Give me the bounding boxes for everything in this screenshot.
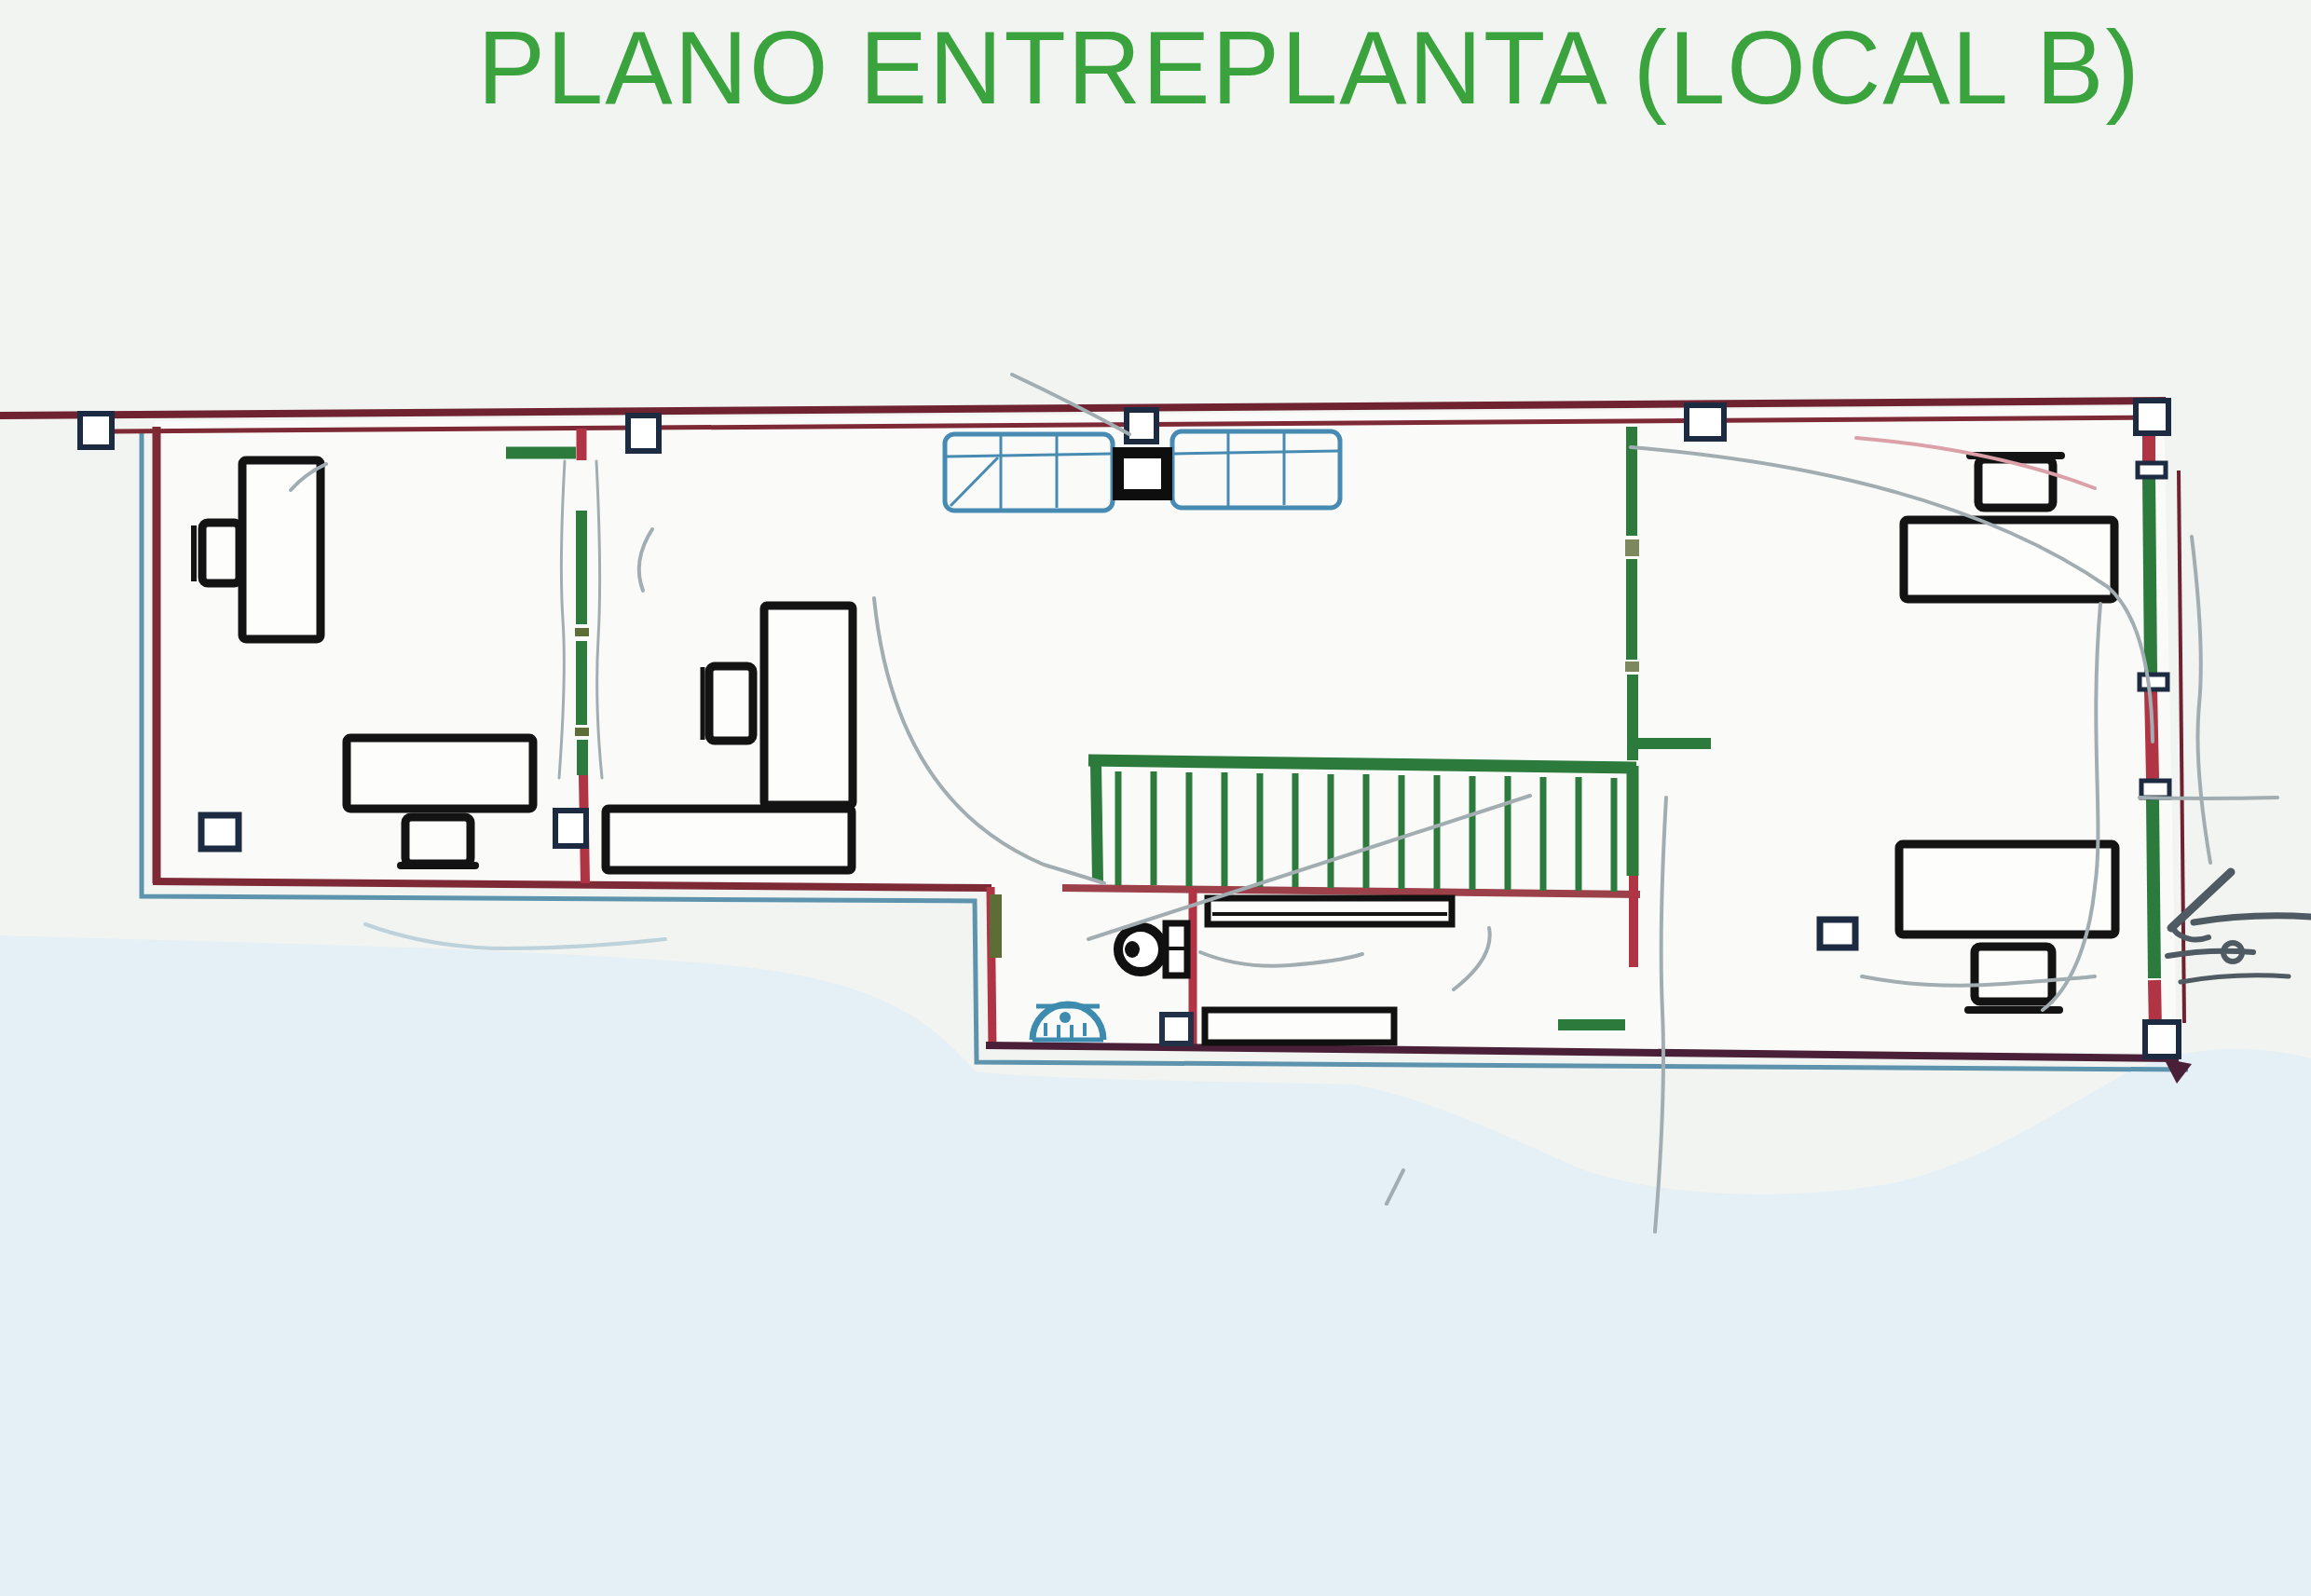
pen-arrow-scribbles: [2167, 872, 2311, 982]
facade-mullion-block: [2138, 463, 2166, 477]
page: PLANO ENTREPLANTA (LOCAL B): [0, 0, 2311, 1596]
facade-mullion-block: [2140, 675, 2167, 689]
desk: [606, 809, 852, 870]
column-marker: [2136, 401, 2168, 433]
facade-outer-frame: [2179, 471, 2184, 1023]
shelf-unit: [1208, 898, 1452, 924]
pencil-line: [2140, 798, 2277, 798]
partition1-hatch: [575, 728, 589, 736]
shelf-unit: [1205, 1010, 1394, 1043]
bathroom-door: [990, 894, 1002, 958]
column-marker: [628, 416, 659, 451]
toilet-drain: [1125, 941, 1140, 958]
partition2-hatch: [1625, 662, 1639, 672]
facade-mullion-block: [2141, 781, 2169, 798]
desk: [242, 460, 321, 639]
black-column-marker: [1118, 453, 1167, 495]
column-marker: [555, 811, 586, 846]
partition1-hatch: [575, 628, 589, 636]
monitor: [709, 666, 753, 741]
pen-squiggle: [2181, 975, 2289, 982]
stairs-rail-top: [1088, 760, 1636, 768]
shower-tray-marker: [1162, 1015, 1191, 1044]
laptop: [405, 817, 471, 864]
monitor: [202, 523, 239, 583]
desk: [347, 738, 533, 809]
desk: [1899, 844, 2115, 934]
pencil-blue-wave: [365, 924, 665, 948]
partition2-hatch: [1625, 539, 1639, 556]
sink-drain: [1060, 1012, 1071, 1023]
monitor: [1978, 459, 2053, 508]
column-marker: [1127, 410, 1156, 442]
column-marker: [1687, 405, 1724, 439]
stairs-rail-left-post: [1096, 762, 1098, 881]
cabinet: [764, 606, 853, 805]
facade-window-green: [2149, 475, 2151, 673]
column-marker: [201, 815, 239, 849]
floor-plan-drawing: [0, 0, 2311, 1596]
column-marker: [2145, 1022, 2179, 1057]
facade-window-green: [2153, 799, 2154, 978]
column-marker: [1820, 920, 1855, 948]
column-marker: [80, 414, 112, 447]
pencil-vertical: [2192, 537, 2210, 863]
pen-squiggle: [2194, 916, 2311, 922]
laptop: [1975, 947, 2052, 1002]
